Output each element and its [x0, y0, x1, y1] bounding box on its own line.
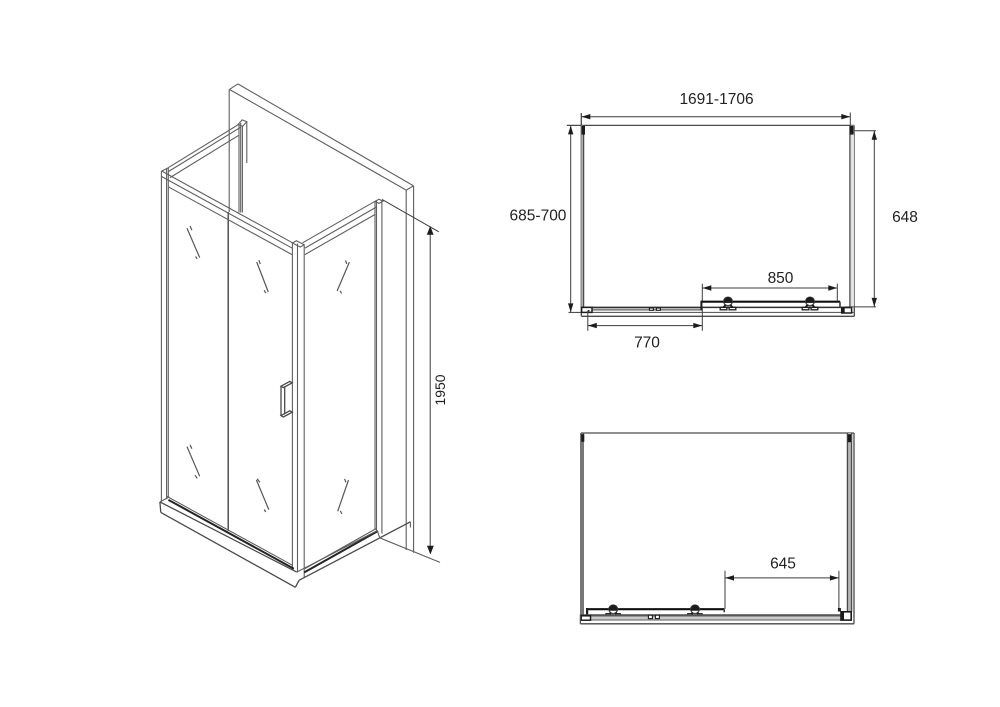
svg-text:1950: 1950 — [432, 374, 448, 405]
svg-text:648: 648 — [892, 209, 918, 226]
svg-text:770: 770 — [634, 335, 660, 352]
svg-text:645: 645 — [770, 556, 796, 573]
svg-text:850: 850 — [768, 270, 794, 287]
svg-text:685-700: 685-700 — [510, 208, 567, 225]
svg-text:1691-1706: 1691-1706 — [679, 91, 753, 108]
